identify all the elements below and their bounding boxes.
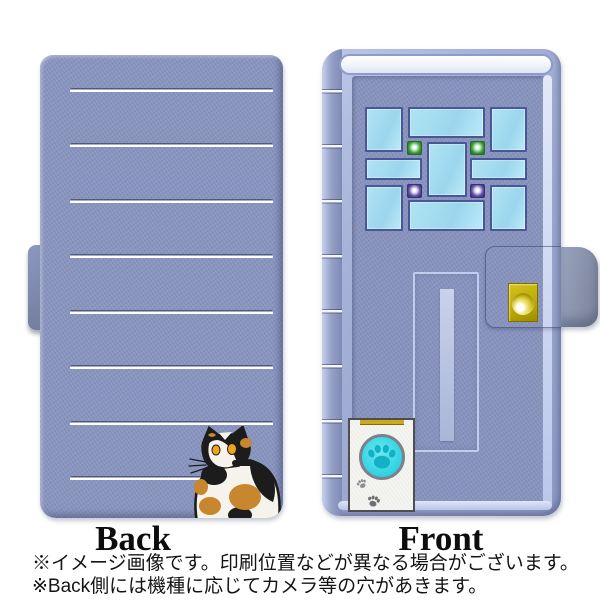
calico-cat-illustration [188, 426, 283, 518]
spine-rib [322, 144, 342, 150]
paw-print-button [359, 434, 405, 480]
back-stripe [70, 143, 273, 148]
window-pane [365, 158, 422, 180]
window-pane [490, 107, 527, 152]
spine-rib [322, 254, 342, 260]
spine-rib [322, 89, 342, 95]
footnote-line-2: ※Back側には機種に応じてカメラ等の穴があきます。 [32, 575, 592, 598]
back-stripe [70, 254, 273, 259]
back-view-label: Back [43, 521, 223, 556]
snap-circle-icon [512, 293, 534, 315]
window-pane [408, 200, 485, 231]
window-pane [365, 107, 403, 152]
case-spine [322, 49, 342, 516]
paw-prints-icon [366, 494, 381, 509]
case-front-cover [322, 49, 561, 516]
pet-door-hinge [360, 420, 404, 425]
back-stripe [70, 365, 273, 370]
back-stripe [70, 310, 273, 315]
case-back-cover [40, 55, 283, 518]
footnote-line-1: ※イメージ画像です。印刷位置などが異なる場合がございます。 [32, 552, 592, 575]
front-view-label: Front [351, 521, 531, 556]
footnotes: ※イメージ画像です。印刷位置などが異なる場合がございます。 ※Back側には機種… [32, 552, 592, 598]
window-pane [490, 185, 527, 231]
window-pane [470, 158, 527, 180]
purple-light-icon [470, 184, 485, 198]
green-light-icon [407, 141, 422, 155]
purple-light-icon [407, 184, 422, 198]
spine-rib [322, 419, 342, 425]
door-mail-slot [413, 272, 479, 452]
window-pane [427, 142, 467, 197]
window-pane [408, 107, 485, 138]
paw-prints-icon [356, 478, 368, 490]
gold-snap-button [508, 283, 538, 322]
window-pane [365, 185, 403, 231]
mail-slot-opening [440, 289, 454, 441]
door-transom-window [339, 54, 553, 75]
spine-rib [322, 364, 342, 370]
product-image-phone-case: Back Front ※イメージ画像です。印刷位置などが異なる場合がございます。… [0, 0, 600, 600]
spine-rib [322, 309, 342, 315]
spine-rib [322, 474, 342, 480]
spine-rib [322, 199, 342, 205]
back-stripe [70, 199, 273, 204]
back-stripe [70, 88, 273, 93]
pet-door-panel [348, 418, 415, 512]
paw-print-icon [365, 440, 399, 474]
green-light-icon [470, 141, 485, 155]
